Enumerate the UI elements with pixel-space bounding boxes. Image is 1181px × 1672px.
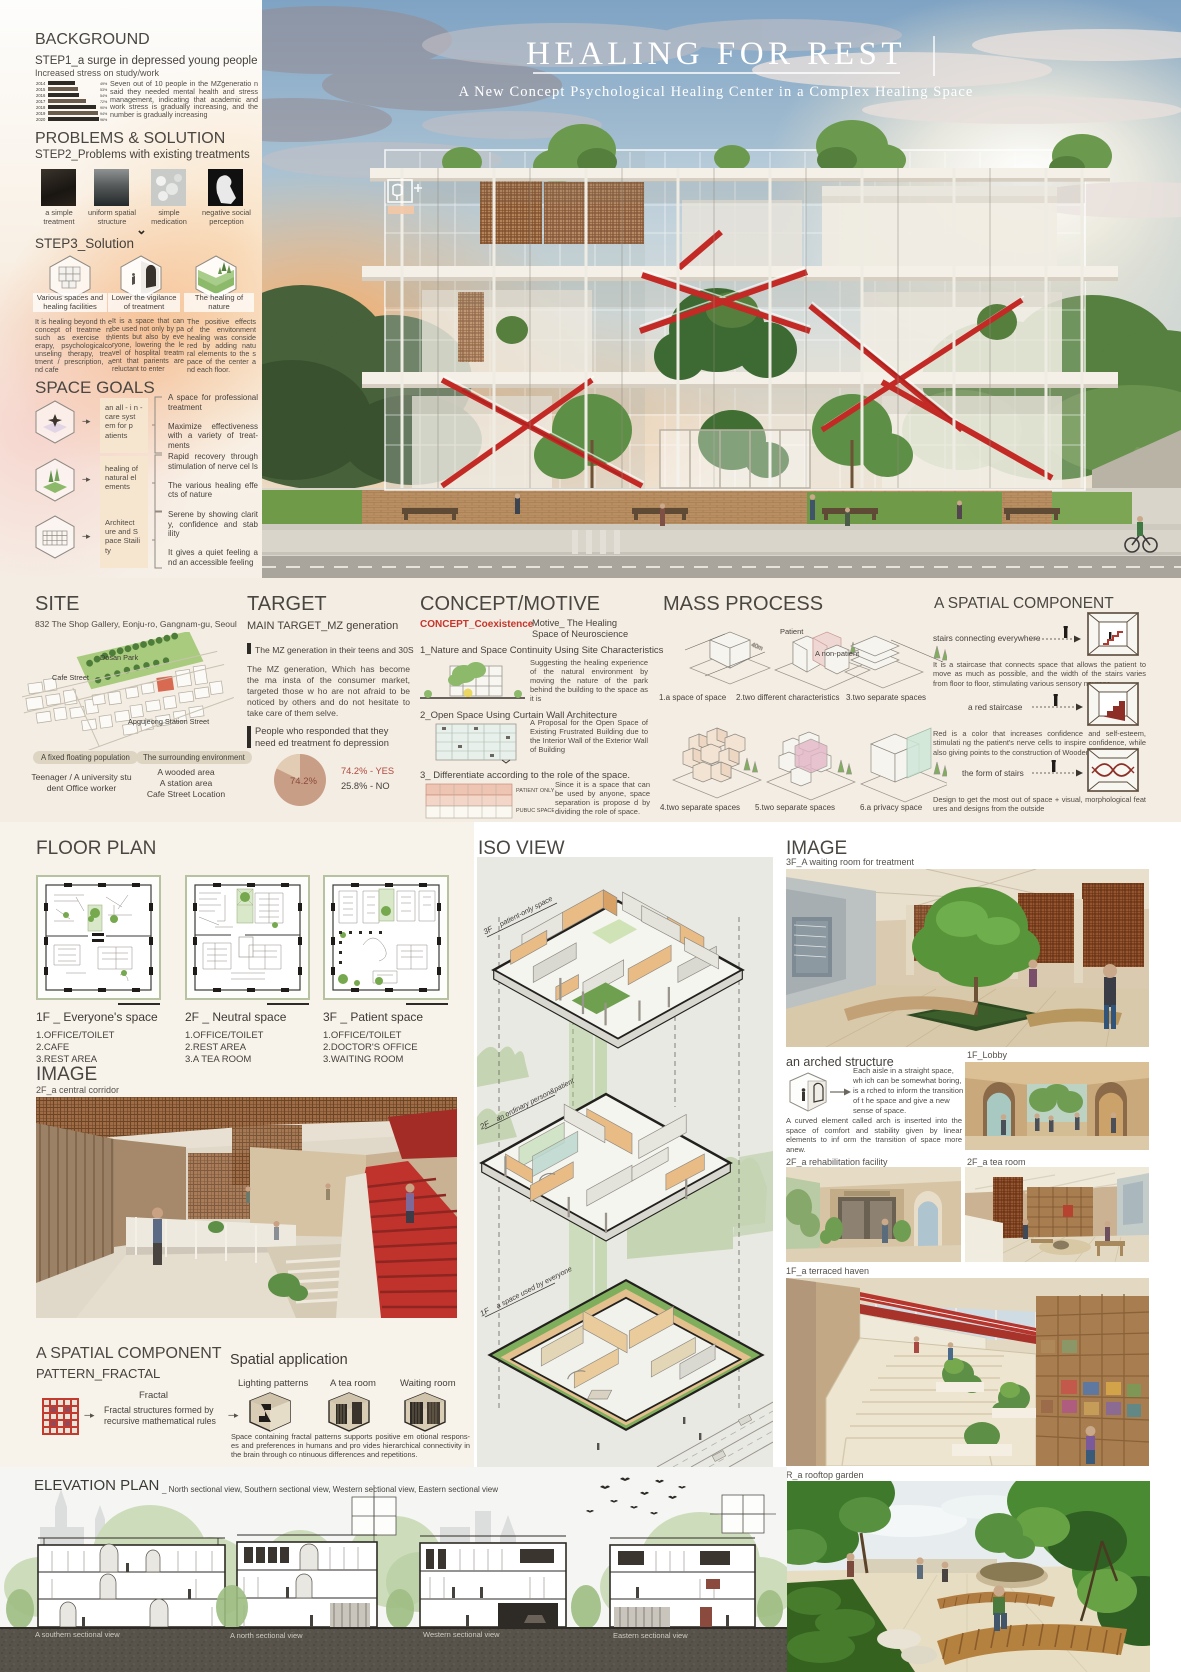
- svg-text:40m: 40m: [750, 642, 763, 652]
- svg-text:2.two different characteristic: 2.two different characteristics: [736, 693, 839, 702]
- svg-text:A non-patient: A non-patient: [815, 649, 860, 658]
- svg-text:2018: 2018: [36, 105, 46, 110]
- svg-text:54%: 54%: [100, 94, 108, 98]
- svg-text:Apgujeong Station Street: Apgujeong Station Street: [128, 717, 209, 726]
- svg-text:2016: 2016: [36, 93, 46, 98]
- svg-text:PUBUC SPACE .: PUBUC SPACE .: [516, 808, 554, 814]
- svg-text:A north sectional view: A north sectional view: [230, 1631, 303, 1640]
- svg-text:2014: 2014: [36, 81, 46, 86]
- svg-text:6.a privacy space: 6.a privacy space: [860, 803, 923, 812]
- svg-text:3.two separate spaces: 3.two separate spaces: [846, 693, 926, 702]
- svg-text:2019: 2019: [36, 111, 46, 116]
- svg-text:2015: 2015: [36, 87, 46, 92]
- svg-text:A southern sectional view: A southern sectional view: [35, 1630, 120, 1639]
- svg-text:PATIENT ONLY .: PATIENT ONLY .: [516, 788, 554, 794]
- svg-text:Western sectional view: Western sectional view: [423, 1630, 500, 1639]
- svg-text:5.two separate spaces: 5.two separate spaces: [755, 803, 835, 812]
- svg-text:HEALING FOR REST: HEALING FOR REST: [526, 36, 906, 72]
- svg-text:2017: 2017: [36, 99, 46, 104]
- svg-text:94%: 94%: [100, 112, 108, 116]
- svg-text:74.2%: 74.2%: [290, 776, 317, 787]
- svg-text:Cafe Street: Cafe Street: [52, 673, 89, 682]
- svg-text:A New Concept Psychological He: A New Concept Psychological Healing Cent…: [459, 84, 974, 100]
- svg-text:4.two separate spaces: 4.two separate spaces: [660, 803, 740, 812]
- svg-text:53%: 53%: [100, 88, 108, 92]
- svg-text:49%: 49%: [100, 82, 108, 86]
- svg-text:96%: 96%: [100, 118, 108, 122]
- svg-text:Dosan Park: Dosan Park: [100, 653, 138, 662]
- svg-text:1.a space of space: 1.a space of space: [659, 693, 727, 702]
- svg-text:72%: 72%: [100, 100, 108, 104]
- svg-text:Patient: Patient: [780, 627, 804, 636]
- svg-text:90%: 90%: [100, 106, 108, 110]
- svg-text:Eastern sectional view: Eastern sectional view: [613, 1631, 688, 1640]
- svg-text:2020: 2020: [36, 117, 46, 122]
